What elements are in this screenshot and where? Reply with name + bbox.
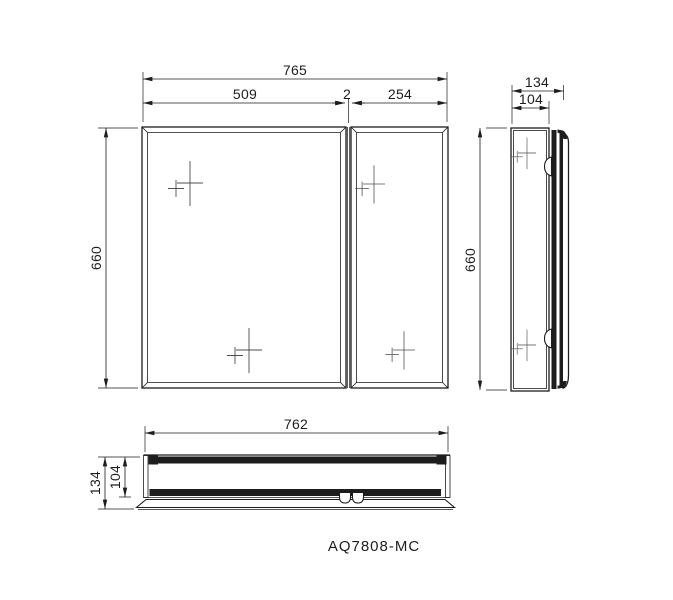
front-view xyxy=(142,127,448,388)
dimension-label: 254 xyxy=(388,86,412,102)
hinge-icon xyxy=(353,493,364,504)
dimension-label: 104 xyxy=(107,465,123,489)
side-back-rail xyxy=(552,130,557,389)
extension-lines xyxy=(98,128,138,388)
dim-side-overall-depth: 134 xyxy=(512,74,564,91)
front-right-door-panel xyxy=(351,127,448,388)
dim-bottom-overall-depth: 134 xyxy=(87,457,105,509)
dimension-label: 765 xyxy=(283,62,307,78)
extension-lines xyxy=(486,128,507,390)
bottom-back-rail-end-block xyxy=(149,455,159,465)
front-right-door-bevel xyxy=(351,127,448,388)
drawing-page: 765 509 2 254 660 xyxy=(0,0,673,600)
dimension-label: 104 xyxy=(519,91,543,107)
bottom-left-end-cap xyxy=(144,456,149,498)
dimension-label: 2 xyxy=(343,86,351,102)
side-view xyxy=(511,128,569,391)
dim-front-height: 660 xyxy=(88,128,106,388)
front-left-door-bevel xyxy=(142,127,346,388)
sparkle-icon xyxy=(227,328,262,373)
dim-overall-width: 765 xyxy=(143,62,447,79)
bottom-back-rail xyxy=(150,457,442,464)
dim-left-panel-width: 509 xyxy=(143,86,345,103)
dimension-label: 660 xyxy=(88,246,104,270)
sparkle-icon xyxy=(385,331,415,369)
dim-bottom-cabinet-depth: 104 xyxy=(107,457,125,497)
bottom-trim-flare xyxy=(137,500,455,508)
dim-side-height: 660 xyxy=(462,128,480,390)
bottom-back-rail-end-block xyxy=(437,455,447,465)
drawing-canvas: 765 509 2 254 660 xyxy=(0,0,673,600)
hinge-icon xyxy=(545,157,552,176)
dimension-label: 660 xyxy=(462,248,478,272)
side-cabinet-body-inner xyxy=(514,131,547,389)
dim-right-panel-width: 254 xyxy=(352,86,447,103)
sparkle-icon xyxy=(512,330,536,362)
dim-center-gap: 2 xyxy=(332,86,365,103)
dimension-label: 134 xyxy=(87,471,103,495)
front-left-door-panel xyxy=(142,127,346,388)
dimension-label: 509 xyxy=(233,86,257,102)
hinge-icon xyxy=(545,329,552,348)
sparkle-icon xyxy=(168,161,203,206)
dimension-label: 762 xyxy=(284,416,308,432)
side-back-rail xyxy=(560,131,564,388)
sparkle-icon xyxy=(355,165,385,203)
bottom-view xyxy=(137,455,455,510)
dimension-label: 134 xyxy=(525,74,549,90)
dim-bottom-width: 762 xyxy=(145,416,448,433)
front-door-gap-divider xyxy=(347,127,349,388)
bottom-door-band xyxy=(150,489,442,496)
side-cabinet-body xyxy=(511,128,549,391)
side-back-profile xyxy=(563,133,569,389)
hinge-icon xyxy=(340,493,351,504)
dim-side-cabinet-depth: 104 xyxy=(512,91,549,108)
sparkle-icon xyxy=(512,138,536,170)
model-number-label: AQ7808-MC xyxy=(328,538,420,555)
